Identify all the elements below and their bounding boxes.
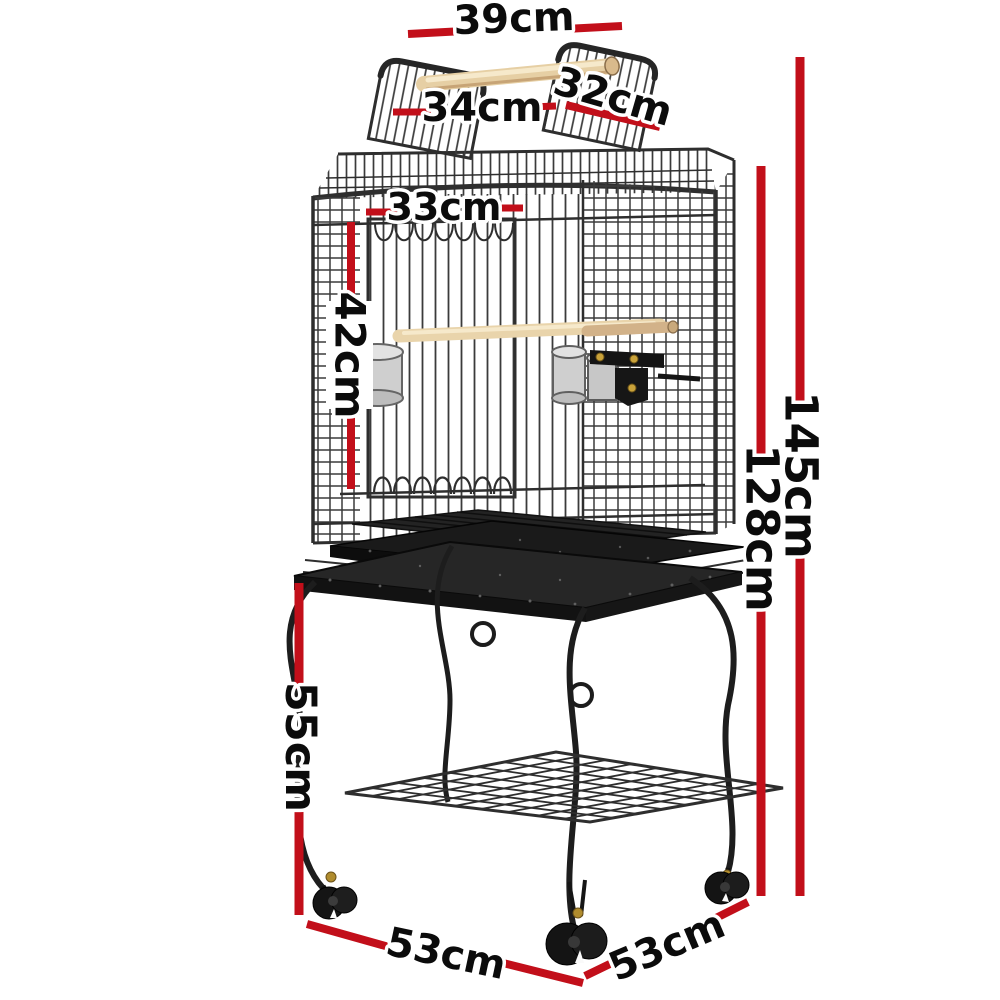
dim-base-depth: 53cm: [585, 901, 748, 991]
dimension-label: 128cm: [736, 444, 789, 612]
castor-wheel-front: [546, 880, 607, 965]
dim-cage-front-width: 33cm: [366, 185, 523, 229]
dimension-label: 55cm: [275, 682, 325, 812]
castor-wheel-right: [705, 868, 749, 904]
diagram-canvas: 39cm 34cm 32cm 33cm 42cm 145cm: [0, 0, 1000, 1000]
wire-shelf: [345, 752, 783, 822]
dim-base-width: 53cm: [307, 919, 583, 989]
dimension-label: 53cm: [602, 901, 731, 991]
dim-stand-height: 55cm: [275, 583, 325, 915]
dimension-label: 33cm: [386, 185, 501, 229]
dimension-label: 39cm: [453, 0, 576, 44]
dim-play-top-width: 39cm: [408, 0, 622, 44]
dimension-label: 42cm: [326, 291, 375, 418]
dimension-label: 53cm: [382, 919, 510, 989]
birdcage-illustration: [290, 42, 783, 965]
product-dimension-diagram: 39cm 34cm 32cm 33cm 42cm 145cm: [0, 0, 1000, 1000]
dimension-label: 34cm: [421, 85, 542, 131]
